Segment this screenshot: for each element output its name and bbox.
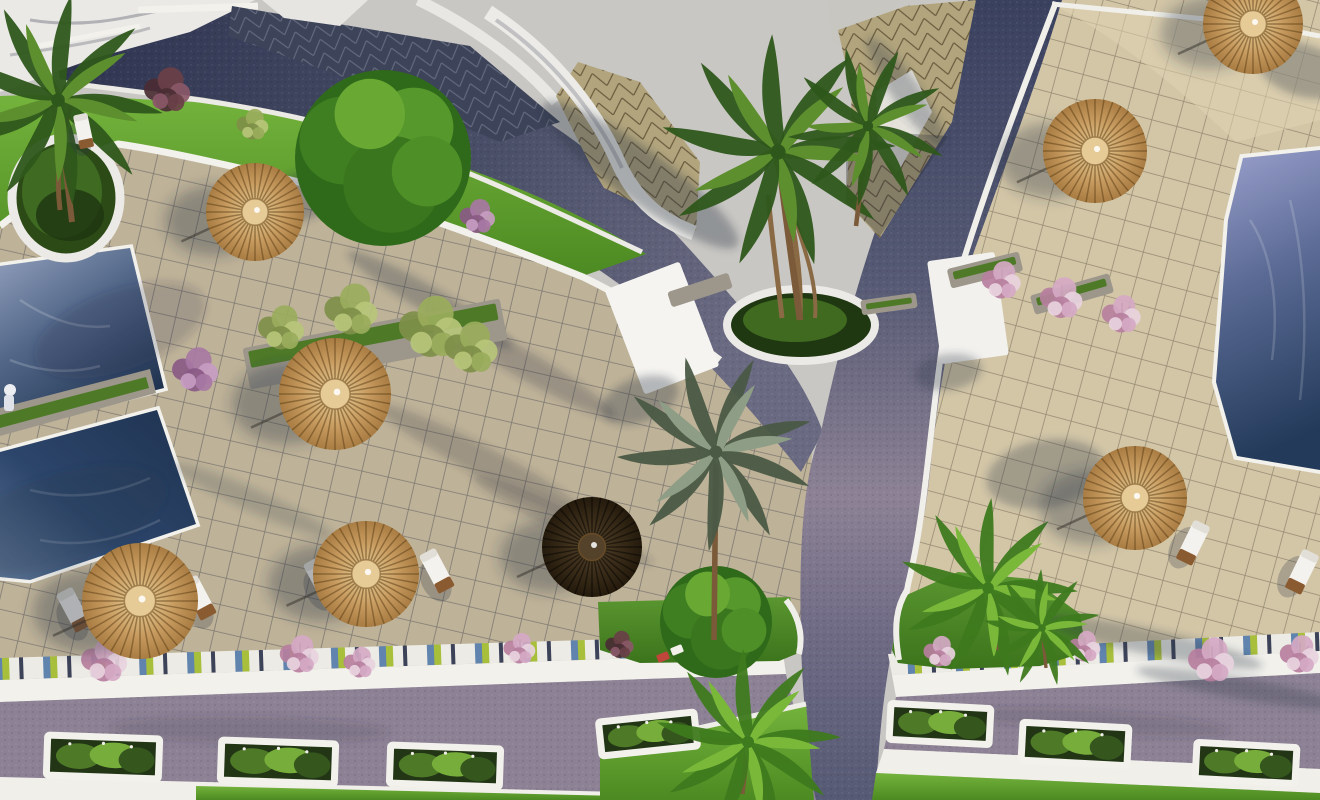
aerial-resort-render <box>0 0 1320 800</box>
white-planter-box <box>389 745 500 787</box>
white-planter-box <box>889 703 991 744</box>
white-planter-box <box>220 740 335 784</box>
leafy-tree <box>295 70 471 246</box>
white-planter-box <box>1195 742 1297 783</box>
render-canvas <box>0 0 1320 800</box>
white-planter-box <box>46 735 159 779</box>
white-planter-box <box>1021 722 1129 765</box>
